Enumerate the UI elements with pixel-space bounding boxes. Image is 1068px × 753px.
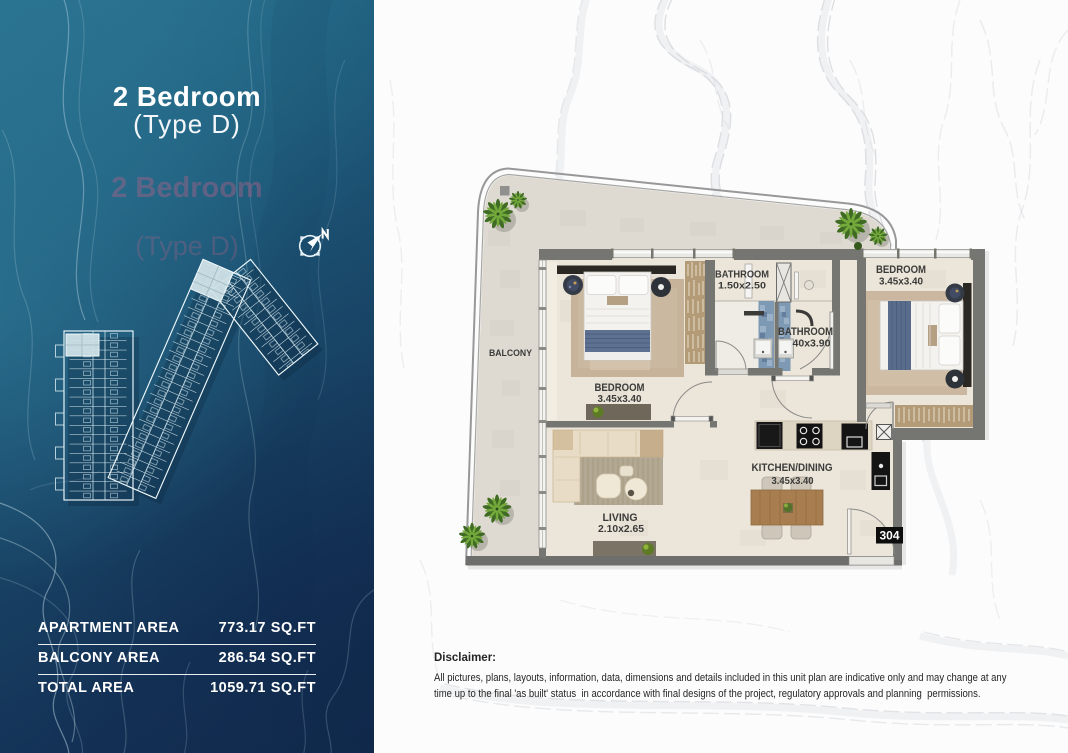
svg-text:BEDROOM: BEDROOM bbox=[595, 382, 645, 394]
svg-text:BATHROOM: BATHROOM bbox=[778, 326, 833, 338]
svg-text:304: 304 bbox=[879, 529, 899, 543]
svg-text:BEDROOM: BEDROOM bbox=[876, 264, 926, 276]
svg-text:3.45x3.40: 3.45x3.40 bbox=[879, 277, 924, 288]
svg-text:1.50x2.50: 1.50x2.50 bbox=[718, 281, 766, 292]
svg-text:3.45x3.40: 3.45x3.40 bbox=[598, 394, 643, 405]
svg-text:3.45x3.40: 3.45x3.40 bbox=[772, 476, 815, 487]
svg-text:KITCHEN/DINING: KITCHEN/DINING bbox=[752, 462, 833, 474]
svg-text:2.10x2.65: 2.10x2.65 bbox=[598, 524, 645, 535]
svg-text:BATHROOM: BATHROOM bbox=[715, 269, 769, 281]
svg-text:BALCONY: BALCONY bbox=[489, 348, 532, 358]
svg-text:LIVING: LIVING bbox=[603, 512, 638, 524]
svg-text:40x3.90: 40x3.90 bbox=[793, 339, 832, 350]
